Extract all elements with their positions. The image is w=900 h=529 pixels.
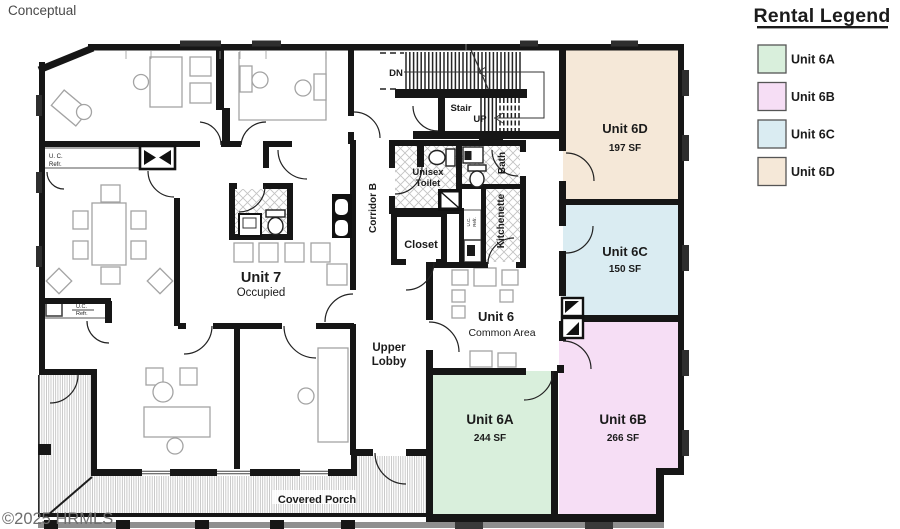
svg-text:Covered Porch: Covered Porch xyxy=(278,494,357,506)
svg-text:Stair: Stair xyxy=(450,103,471,114)
svg-text:Unit 6C: Unit 6C xyxy=(791,128,835,142)
svg-text:Lobby: Lobby xyxy=(372,356,407,368)
svg-text:266 SF: 266 SF xyxy=(607,433,639,444)
svg-text:Toilet: Toilet xyxy=(416,178,441,189)
svg-text:Conceptual: Conceptual xyxy=(8,3,76,18)
svg-text:Unit 7: Unit 7 xyxy=(241,270,281,286)
svg-text:Unit 6D: Unit 6D xyxy=(602,121,648,136)
svg-text:150 SF: 150 SF xyxy=(609,264,641,275)
svg-text:Unit 6: Unit 6 xyxy=(478,309,514,324)
svg-text:Upper: Upper xyxy=(372,342,406,354)
svg-text:244 SF: 244 SF xyxy=(474,433,506,444)
svg-text:U.C.: U.C. xyxy=(466,218,471,227)
svg-text:Kitchenette: Kitchenette xyxy=(496,193,507,248)
svg-text:U. C.: U. C. xyxy=(49,154,63,160)
svg-text:Occupied: Occupied xyxy=(237,287,286,299)
svg-text:Unit 6B: Unit 6B xyxy=(599,412,647,427)
svg-text:DN: DN xyxy=(389,68,403,79)
svg-text:Refr.: Refr. xyxy=(49,162,62,168)
svg-text:©2025 HRMLS: ©2025 HRMLS xyxy=(2,510,113,528)
svg-text:Unit 6B: Unit 6B xyxy=(791,90,835,104)
svg-text:Unit 6A: Unit 6A xyxy=(466,412,514,427)
svg-text:Unit 6A: Unit 6A xyxy=(791,53,835,67)
svg-text:Unisex: Unisex xyxy=(412,167,444,178)
svg-text:Common Area: Common Area xyxy=(468,327,535,339)
svg-text:Closet: Closet xyxy=(404,239,438,251)
svg-text:Unit 6D: Unit 6D xyxy=(791,165,835,179)
svg-text:Refr.: Refr. xyxy=(472,217,477,227)
svg-text:Bath: Bath xyxy=(497,152,508,174)
svg-text:Corridor B: Corridor B xyxy=(368,183,379,233)
svg-text:197 SF: 197 SF xyxy=(609,143,641,154)
svg-text:Unit 6C: Unit 6C xyxy=(602,244,648,259)
svg-text:U.C.: U.C. xyxy=(76,304,87,310)
svg-text:Refr.: Refr. xyxy=(76,311,88,317)
svg-text:UP: UP xyxy=(473,114,487,125)
svg-text:Rental Legend: Rental Legend xyxy=(754,5,891,27)
